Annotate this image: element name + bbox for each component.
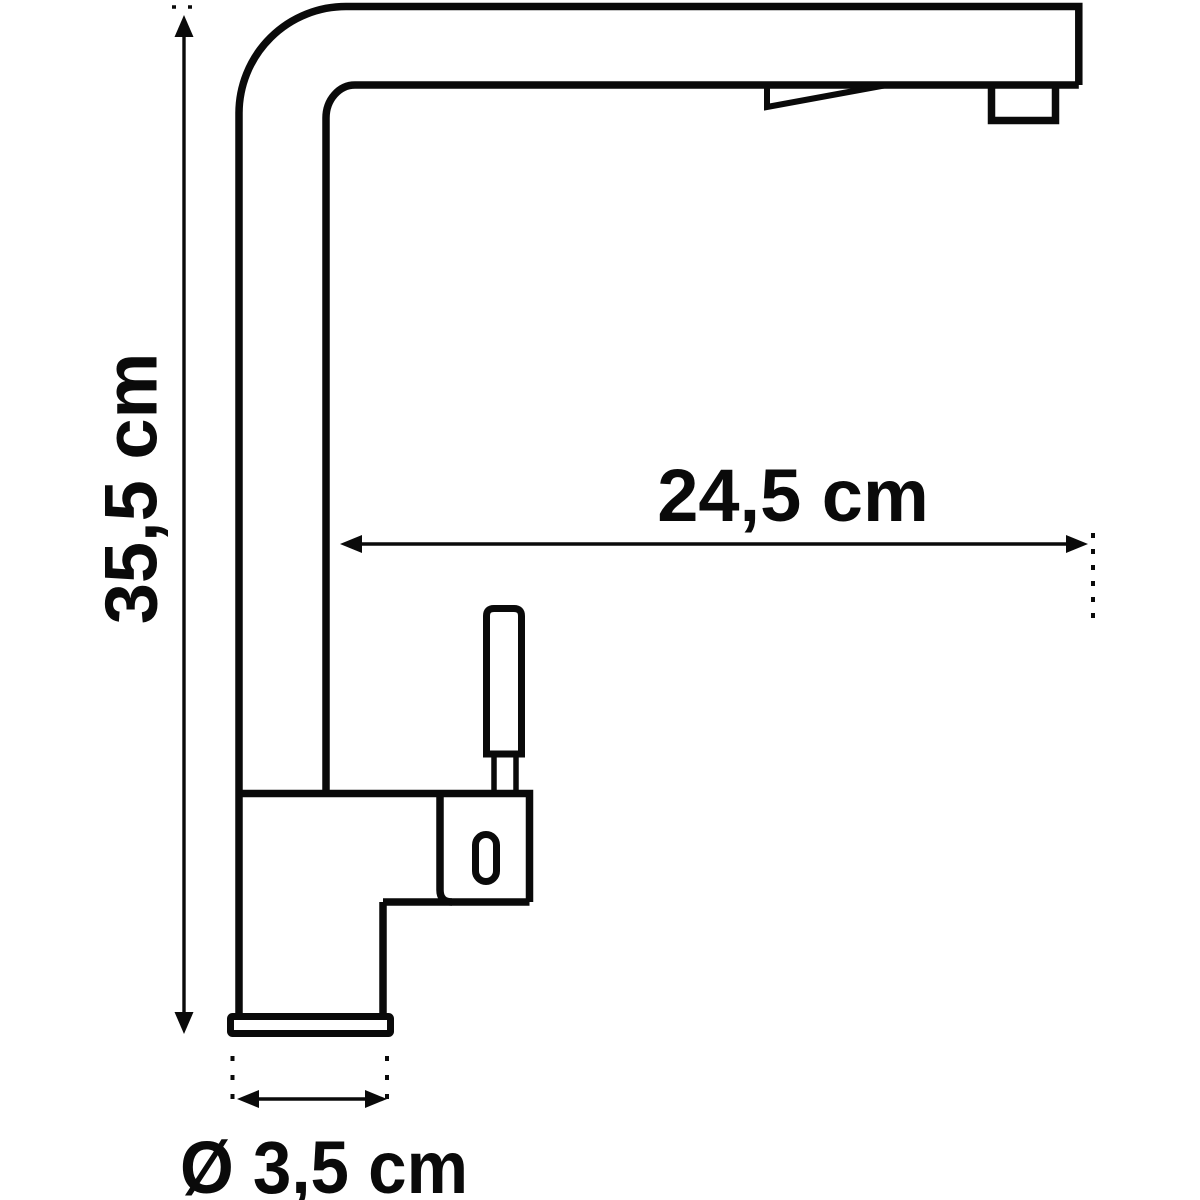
svg-text:24,5 cm: 24,5 cm: [657, 454, 929, 537]
svg-text:35,5 cm: 35,5 cm: [90, 353, 173, 625]
svg-text:Ø 3,5 cm: Ø 3,5 cm: [180, 1126, 468, 1200]
